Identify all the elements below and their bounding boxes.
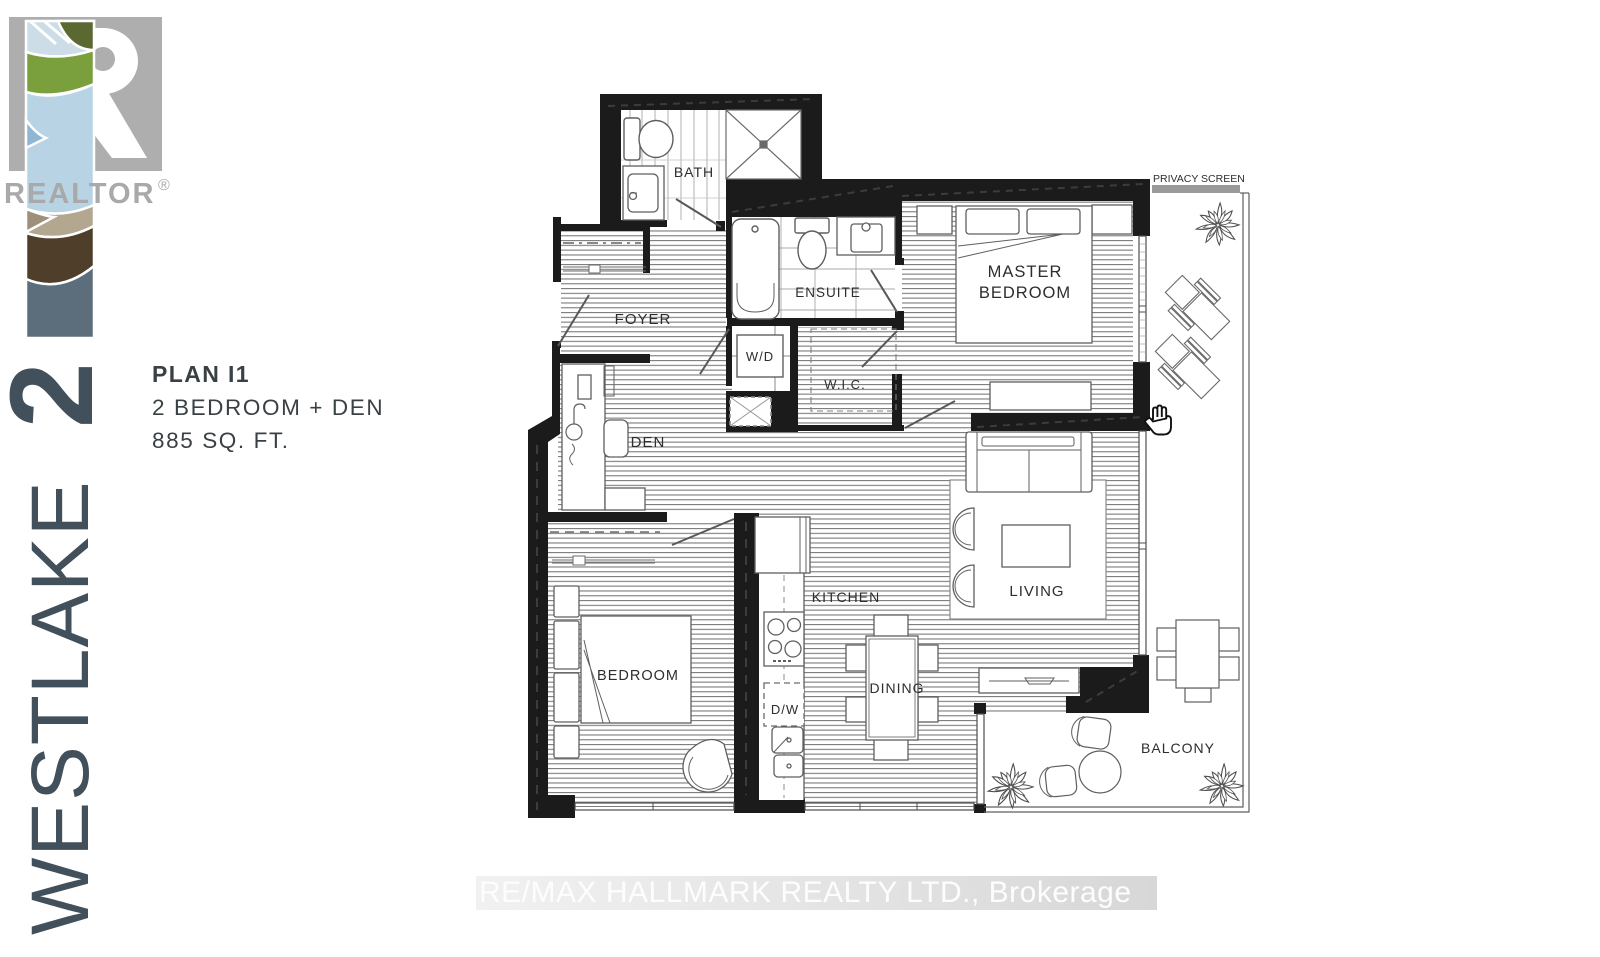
svg-text:®: ® [158, 177, 170, 194]
svg-text:RE/MAX HALLMARK REALTY LTD., B: RE/MAX HALLMARK REALTY LTD., Brokerage [479, 876, 1132, 909]
svg-text:D/W: D/W [771, 702, 799, 717]
svg-text:W.I.C.: W.I.C. [824, 377, 865, 392]
svg-text:FOYER: FOYER [615, 311, 672, 328]
svg-text:DINING: DINING [870, 680, 925, 696]
svg-text:LIVING: LIVING [1009, 583, 1064, 600]
svg-text:2 BEDROOM + DEN: 2 BEDROOM + DEN [152, 395, 384, 420]
svg-text:BEDROOM: BEDROOM [597, 668, 679, 684]
svg-text:2: 2 [0, 362, 118, 428]
svg-text:REALTOR: REALTOR [4, 178, 155, 210]
svg-text:DEN: DEN [631, 434, 666, 451]
svg-text:BALCONY: BALCONY [1141, 740, 1215, 756]
svg-text:MASTER: MASTER [988, 263, 1063, 281]
svg-text:WESTLAKE: WESTLAKE [15, 480, 106, 935]
svg-text:ENSUITE: ENSUITE [795, 285, 861, 300]
svg-text:W/D: W/D [746, 349, 774, 364]
svg-text:BEDROOM: BEDROOM [979, 284, 1071, 302]
svg-text:KITCHEN: KITCHEN [812, 589, 880, 605]
svg-text:PLAN I1: PLAN I1 [152, 361, 250, 387]
svg-text:BATH: BATH [674, 164, 714, 180]
svg-text:885 SQ. FT.: 885 SQ. FT. [152, 428, 290, 453]
svg-text:PRIVACY SCREEN: PRIVACY SCREEN [1153, 173, 1245, 185]
